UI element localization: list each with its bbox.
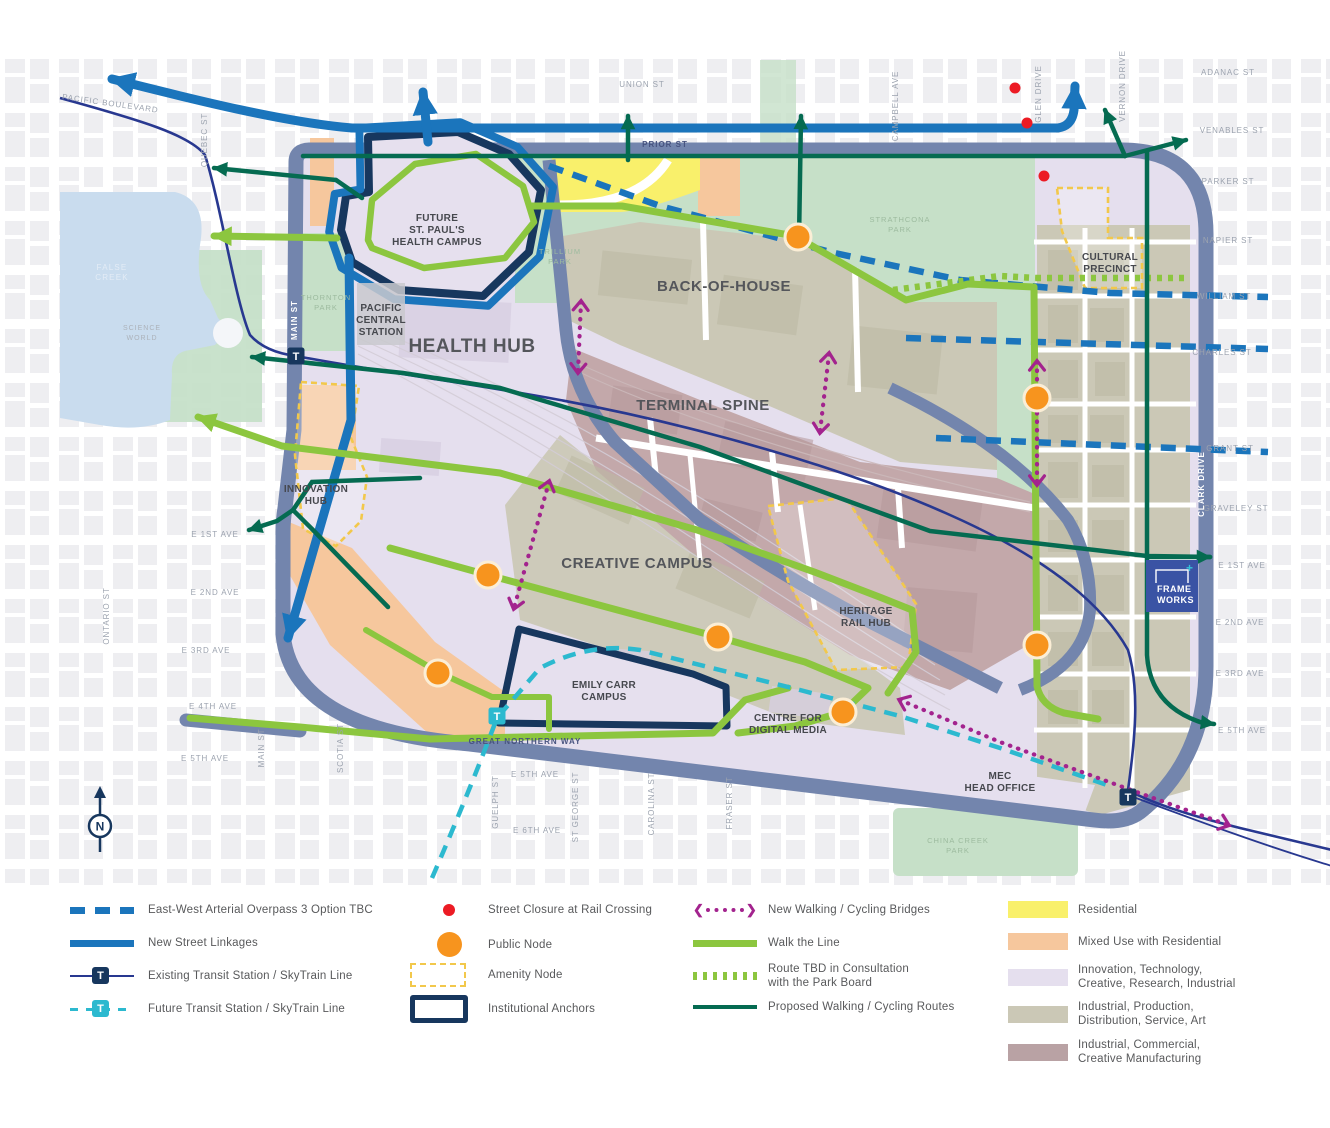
street-grant: GRANT ST bbox=[1206, 444, 1254, 453]
street-e5-mid: E 5TH AVE bbox=[511, 770, 559, 779]
label-science-world-2: WORLD bbox=[126, 335, 157, 342]
logo-plus-icon: + bbox=[1186, 561, 1193, 575]
label-st-pauls: FUTURE bbox=[416, 213, 458, 224]
legend-item-institutional-anchors: Institutional Anchors bbox=[410, 995, 595, 1023]
label-false-creek: FALSE bbox=[97, 263, 128, 272]
label-strathcona-park: STRATHCONA bbox=[869, 215, 930, 224]
label-mec-2: HEAD OFFICE bbox=[964, 783, 1035, 794]
logo-frame: FRAME bbox=[1157, 584, 1192, 594]
frameworks-plan-map: T T T HEALTH HUB BACK-OF-HOUSE TERMINAL … bbox=[0, 0, 1330, 1128]
legend-label: Street Closure at Rail Crossing bbox=[488, 903, 652, 917]
legend-item-route-tbd: Route TBD in Consultation with the Park … bbox=[693, 962, 909, 990]
street-e1-right: E 1ST AVE bbox=[1218, 561, 1265, 570]
mixed-use-swatch bbox=[1008, 933, 1078, 950]
label-cdm: CENTRE FOR bbox=[754, 713, 822, 724]
legend-label: Institutional Anchors bbox=[488, 1002, 595, 1016]
top-margin bbox=[0, 0, 1330, 58]
legend-label: Amenity Node bbox=[488, 968, 563, 982]
legend-item-amenity-node: Amenity Node bbox=[410, 963, 563, 987]
legend-item-industrial-production: Industrial, Production, Distribution, Se… bbox=[1008, 1000, 1206, 1028]
legend-item-mixed-use: Mixed Use with Residential bbox=[1008, 933, 1221, 950]
label-china-creek-park-2: PARK bbox=[946, 846, 970, 855]
innovation-swatch bbox=[1008, 969, 1078, 986]
street-scotia: SCOTIA ST bbox=[336, 723, 345, 773]
street-e5-right: E 5TH AVE bbox=[1218, 726, 1266, 735]
street-e3-right: E 3RD AVE bbox=[1216, 669, 1265, 678]
science-world-dome bbox=[213, 318, 243, 348]
transit-t-icon: T bbox=[92, 1000, 109, 1017]
legend-label: Industrial, Production, Distribution, Se… bbox=[1078, 1000, 1206, 1028]
legend-item-arterial: East-West Arterial Overpass 3 Option TBC bbox=[70, 903, 373, 917]
legend-label: New Walking / Cycling Bridges bbox=[768, 903, 930, 917]
street-campbell: CAMPBELL AVE bbox=[891, 71, 900, 141]
label-st-pauls-2: ST. PAUL'S bbox=[409, 225, 465, 236]
station-main-st: T bbox=[288, 348, 305, 365]
legend-item-proposed-routes: Proposed Walking / Cycling Routes bbox=[693, 1000, 954, 1014]
street-great-northern-way: GREAT NORTHERN WAY bbox=[469, 737, 582, 746]
orange-node-icon bbox=[410, 932, 488, 957]
label-terminal-spine: TERMINAL SPINE bbox=[636, 397, 769, 414]
legend-label: Mixed Use with Residential bbox=[1078, 935, 1221, 949]
legend-item-walk-the-line: Walk the Line bbox=[693, 936, 840, 950]
street-napier: NAPIER ST bbox=[1203, 236, 1253, 245]
street-graveley: GRAVELEY ST bbox=[1204, 504, 1269, 513]
street-vernon: VERNON DRIVE bbox=[1118, 50, 1127, 122]
logo-works: WORKS bbox=[1157, 595, 1194, 605]
street-e3-left: E 3RD AVE bbox=[182, 646, 231, 655]
legend-label: East-West Arterial Overpass 3 Option TBC bbox=[148, 903, 373, 917]
legend-item-existing-transit: T Existing Transit Station / SkyTrain Li… bbox=[70, 966, 352, 986]
legend-label: Existing Transit Station / SkyTrain Line bbox=[148, 969, 352, 983]
label-cultural-precinct: CULTURAL bbox=[1082, 252, 1138, 263]
label-china-creek-park: CHINA CREEK bbox=[927, 836, 989, 845]
street-fraser: FRASER ST bbox=[725, 777, 734, 830]
label-false-creek-2: CREEK bbox=[95, 273, 129, 282]
label-trillium-park-2: PARK bbox=[548, 257, 572, 266]
legend-label: Public Node bbox=[488, 938, 552, 952]
legend-item-street-closure: Street Closure at Rail Crossing bbox=[410, 903, 652, 917]
dashed-blue-line-icon bbox=[70, 907, 148, 914]
street-main-lower: MAIN ST bbox=[257, 729, 266, 768]
compass-n-letter: N bbox=[96, 820, 105, 834]
amenity-node-icon bbox=[410, 963, 488, 987]
industrial-production-swatch bbox=[1008, 1006, 1078, 1023]
street-e2-left: E 2ND AVE bbox=[191, 588, 240, 597]
legend-item-new-streets: New Street Linkages bbox=[70, 936, 258, 950]
label-innovation-hub-2: HUB bbox=[305, 496, 328, 507]
label-back-of-house: BACK-OF-HOUSE bbox=[657, 278, 791, 295]
street-union: UNION ST bbox=[619, 80, 664, 89]
solid-blue-line-icon bbox=[70, 940, 148, 947]
label-thornton-park: THORNTON bbox=[301, 293, 351, 302]
label-thornton-park-2: PARK bbox=[314, 303, 338, 312]
frameworks-logo: FRAME WORKS + bbox=[1146, 560, 1198, 612]
legend-item-residential: Residential bbox=[1008, 901, 1137, 918]
legend-label: Proposed Walking / Cycling Routes bbox=[768, 1000, 954, 1014]
street-st-george: ST GEORGE ST bbox=[571, 772, 580, 843]
legend-label: Innovation, Technology, Creative, Resear… bbox=[1078, 963, 1235, 991]
station-t: T bbox=[494, 711, 501, 723]
station-t: T bbox=[293, 351, 300, 363]
anchor-box-icon bbox=[410, 995, 488, 1023]
label-mec: MEC bbox=[988, 771, 1011, 782]
green-dotted-line-icon bbox=[693, 972, 768, 980]
station-t: T bbox=[1125, 792, 1132, 804]
label-heritage-rail-hub: HERITAGE bbox=[839, 606, 892, 617]
label-science-world: SCIENCE bbox=[123, 325, 161, 332]
legend-item-public-node: Public Node bbox=[410, 932, 552, 957]
existing-transit-icon: T bbox=[70, 966, 148, 986]
label-pacific-central-2: CENTRAL bbox=[356, 315, 406, 326]
legend-item-bridges: ❮ ❯ New Walking / Cycling Bridges bbox=[693, 903, 930, 917]
label-emily-carr-2: CAMPUS bbox=[581, 692, 626, 703]
street-e5-left: E 5TH AVE bbox=[181, 754, 229, 763]
street-clark: CLARK DRIVE bbox=[1197, 451, 1206, 517]
street-carolina: CAROLINA ST bbox=[647, 773, 656, 836]
label-trillium-park: TRILLIUM bbox=[539, 247, 581, 256]
transit-t-icon: T bbox=[92, 967, 109, 984]
label-pacific-central: PACIFIC bbox=[360, 303, 401, 314]
street-charles: CHARLES ST bbox=[1192, 348, 1251, 357]
label-innovation-hub: INNOVATION bbox=[284, 484, 348, 495]
label-heritage-rail-hub-2: RAIL HUB bbox=[841, 618, 891, 629]
legend-item-future-transit: T Future Transit Station / SkyTrain Line bbox=[70, 999, 345, 1019]
label-strathcona-park-2: PARK bbox=[888, 225, 912, 234]
magenta-dotted-bridge-icon: ❮ ❯ bbox=[693, 905, 768, 915]
industrial-commercial-swatch bbox=[1008, 1044, 1078, 1061]
street-parker: PARKER ST bbox=[1202, 177, 1255, 186]
label-cdm-2: DIGITAL MEDIA bbox=[749, 725, 827, 736]
red-dot-icon bbox=[410, 904, 488, 916]
street-quebec: QUEBEC ST bbox=[200, 113, 209, 167]
street-venables: VENABLES ST bbox=[1200, 126, 1265, 135]
legend-label: Route TBD in Consultation with the Park … bbox=[768, 962, 909, 990]
street-e2-right: E 2ND AVE bbox=[1216, 618, 1265, 627]
label-cultural-precinct-2: PRECINCT bbox=[1083, 264, 1137, 275]
street-prior: PRIOR ST bbox=[642, 140, 688, 149]
label-st-pauls-3: HEALTH CAMPUS bbox=[392, 237, 482, 248]
street-e6-mid: E 6TH AVE bbox=[513, 826, 561, 835]
street-glen: GLEN DRIVE bbox=[1034, 65, 1043, 122]
label-pacific-central-3: STATION bbox=[359, 327, 404, 338]
legend-item-innovation: Innovation, Technology, Creative, Resear… bbox=[1008, 963, 1235, 991]
station-clark: T bbox=[1120, 789, 1137, 806]
residential-swatch bbox=[1008, 901, 1078, 918]
legend-label: New Street Linkages bbox=[148, 936, 258, 950]
future-transit-icon: T bbox=[70, 999, 148, 1019]
street-adanac: ADANAC ST bbox=[1201, 68, 1255, 77]
street-william: WILLIAM ST bbox=[1197, 292, 1251, 301]
label-health-hub: HEALTH HUB bbox=[408, 336, 535, 357]
label-creative-campus: CREATIVE CAMPUS bbox=[561, 555, 712, 572]
street-e4-left: E 4TH AVE bbox=[189, 702, 237, 711]
green-line-icon bbox=[693, 940, 768, 947]
legend-label: Residential bbox=[1078, 903, 1137, 917]
station-future-emily-carr: T bbox=[489, 708, 506, 725]
legend-label: Future Transit Station / SkyTrain Line bbox=[148, 1002, 345, 1016]
street-guelph: GUELPH ST bbox=[491, 775, 500, 828]
map-canvas: T T T HEALTH HUB BACK-OF-HOUSE TERMINAL … bbox=[0, 0, 1330, 1128]
legend-label: Industrial, Commercial, Creative Manufac… bbox=[1078, 1038, 1201, 1066]
label-emily-carr: EMILY CARR bbox=[572, 680, 637, 691]
dark-green-line-icon bbox=[693, 1005, 768, 1009]
street-e1-left: E 1ST AVE bbox=[191, 530, 238, 539]
street-main-upper: MAIN ST bbox=[290, 300, 299, 340]
street-ontario: ONTARIO ST bbox=[102, 587, 111, 644]
legend-item-industrial-commercial: Industrial, Commercial, Creative Manufac… bbox=[1008, 1038, 1201, 1066]
legend-label: Walk the Line bbox=[768, 936, 840, 950]
